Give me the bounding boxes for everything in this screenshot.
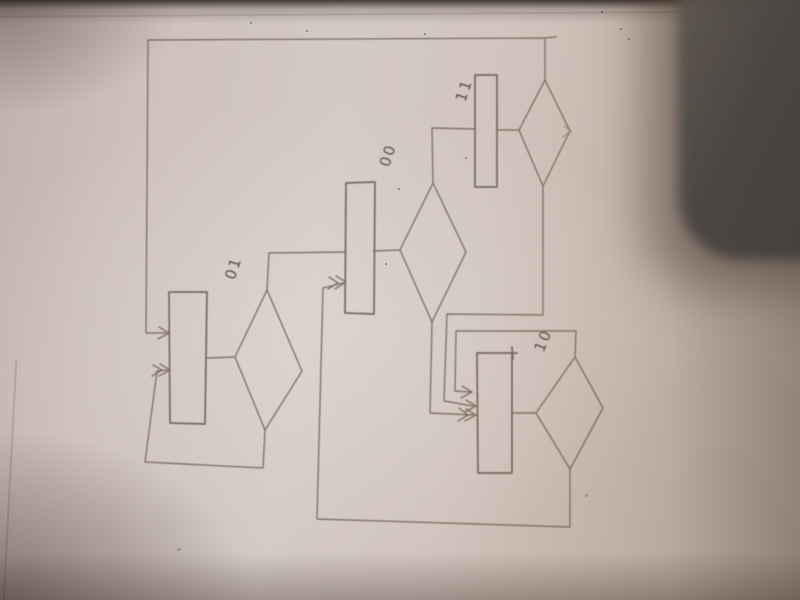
paper-speck [628, 38, 630, 40]
paper-speck [424, 33, 426, 35]
dark-object-top-right [678, 0, 800, 260]
state-label-00: 00 [376, 141, 400, 169]
decision-diamond-00 [400, 183, 466, 322]
decision-diamond-10 [536, 357, 603, 469]
edge-diamond10-bottom-to-rect00 [317, 283, 570, 527]
process-rect-00 [345, 182, 375, 314]
state-label-11: 11 [452, 76, 476, 104]
paper-speck [398, 188, 400, 190]
photo-of-paper: 01 00 11 10 [0, 0, 800, 600]
process-rect-01 [169, 292, 207, 424]
edge-diamond01-top-to-rect00 [267, 252, 346, 290]
paper-speck [385, 263, 387, 265]
state-11-group: 11 [452, 75, 571, 187]
paper-speck [306, 30, 308, 32]
edge-diamond11-top-to-rect01 [146, 37, 556, 333]
edge-diamond11-bottom-to-rect10 [444, 186, 543, 406]
connector-rect01-diamond01 [206, 357, 234, 358]
paper-speck [601, 11, 603, 13]
process-rect-11 [475, 75, 497, 187]
connector-rect00-diamond00 [374, 250, 400, 251]
state-01-group: 01 [169, 254, 302, 430]
paper-speck [465, 157, 467, 159]
stray-arrow-tick-diamond11-right [563, 126, 571, 137]
paper-speck [620, 28, 622, 30]
state-10-group: 10 [477, 326, 603, 473]
decision-diamond-01 [235, 290, 302, 430]
edge-diamond00-top-to-rect11 [432, 128, 475, 183]
paper-smudge [177, 548, 181, 551]
paper-speck [250, 22, 252, 24]
paper-smudge [585, 494, 588, 497]
state-label-01: 01 [221, 254, 245, 282]
process-rect-10 [477, 347, 517, 473]
state-00-group: 00 [345, 141, 466, 322]
decision-diamond-11 [519, 80, 570, 186]
